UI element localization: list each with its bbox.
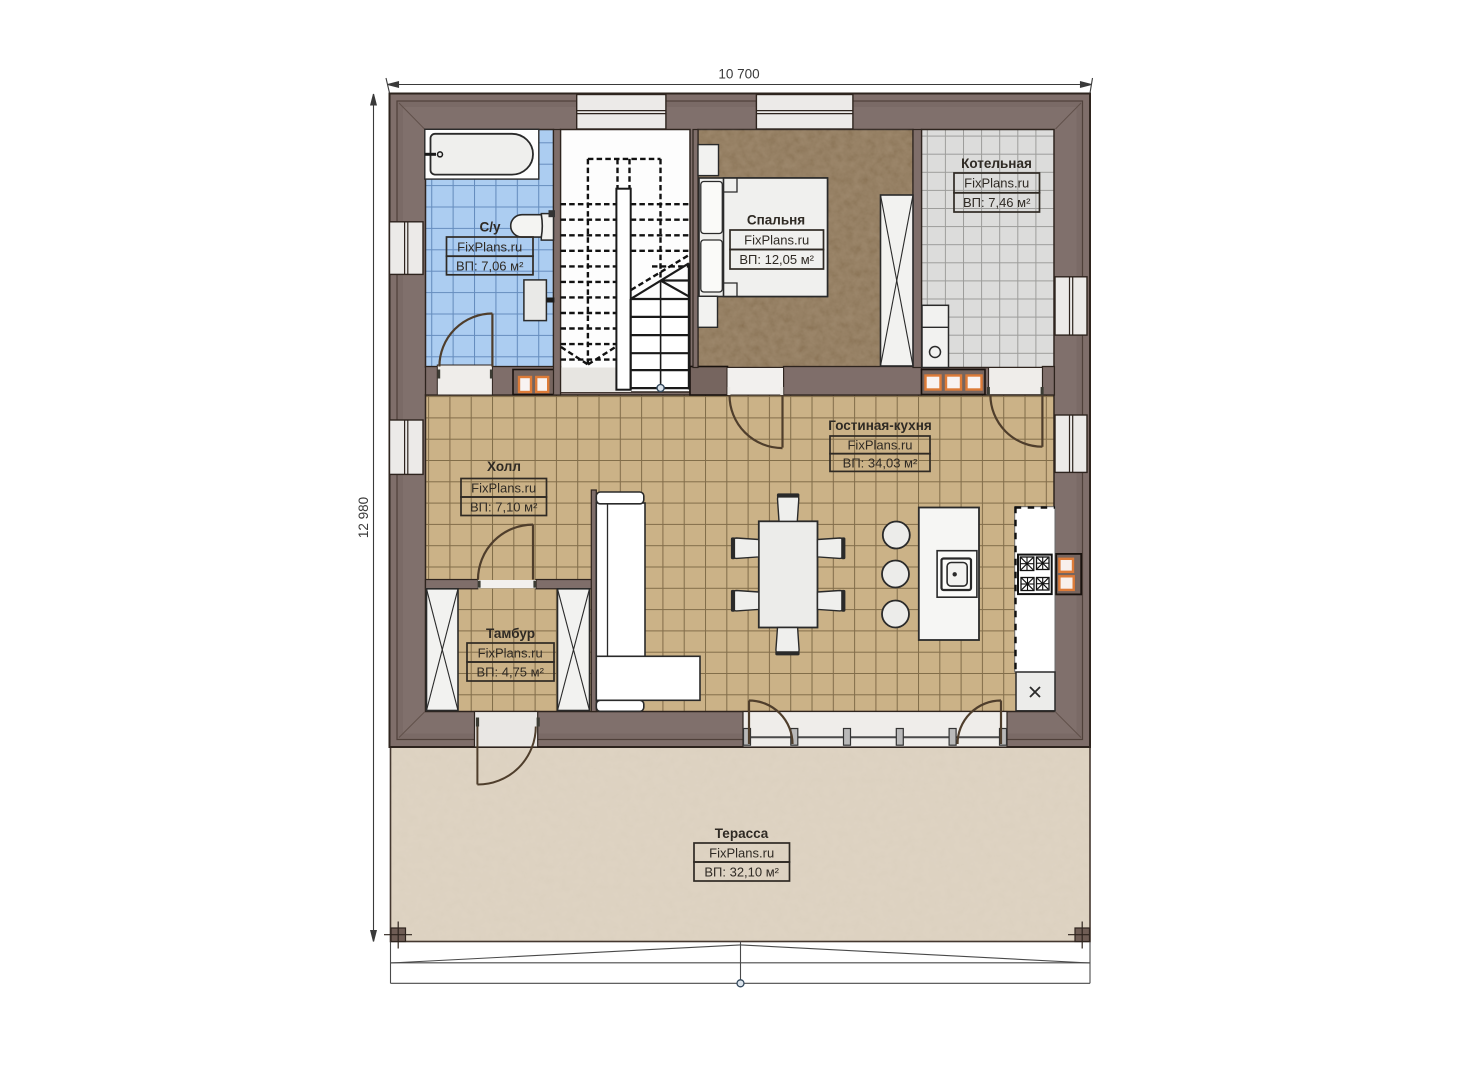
svg-text:FixPlans.ru: FixPlans.ru xyxy=(847,438,912,453)
svg-text:ВП: 34,03 м²: ВП: 34,03 м² xyxy=(843,456,918,471)
svg-text:Холл: Холл xyxy=(487,459,521,474)
svg-text:FixPlans.ru: FixPlans.ru xyxy=(457,240,522,255)
svg-text:10 700: 10 700 xyxy=(718,67,759,82)
svg-text:ВП: 7,06 м²: ВП: 7,06 м² xyxy=(456,259,524,274)
svg-text:ВП: 4,75 м²: ВП: 4,75 м² xyxy=(476,665,544,680)
svg-text:FixPlans.ru: FixPlans.ru xyxy=(964,176,1029,191)
svg-text:ВП: 32,10 м²: ВП: 32,10 м² xyxy=(704,865,779,880)
svg-text:ВП: 7,10 м²: ВП: 7,10 м² xyxy=(470,500,538,515)
svg-text:FixPlans.ru: FixPlans.ru xyxy=(478,646,543,661)
svg-text:Спальня: Спальня xyxy=(747,213,805,228)
svg-text:12 980: 12 980 xyxy=(356,497,371,538)
svg-text:FixPlans.ru: FixPlans.ru xyxy=(709,846,774,861)
svg-text:FixPlans.ru: FixPlans.ru xyxy=(744,233,809,248)
svg-text:ВП: 7,46 м²: ВП: 7,46 м² xyxy=(963,195,1031,210)
svg-text:Тамбур: Тамбур xyxy=(486,626,535,641)
svg-text:FixPlans.ru: FixPlans.ru xyxy=(471,481,536,496)
svg-text:ВП: 12,05 м²: ВП: 12,05 м² xyxy=(739,252,814,267)
svg-text:Котельная: Котельная xyxy=(961,156,1032,171)
svg-text:С/у: С/у xyxy=(479,220,501,235)
svg-text:Терасса: Терасса xyxy=(715,826,769,841)
svg-text:Гостиная-кухня: Гостиная-кухня xyxy=(828,418,931,433)
